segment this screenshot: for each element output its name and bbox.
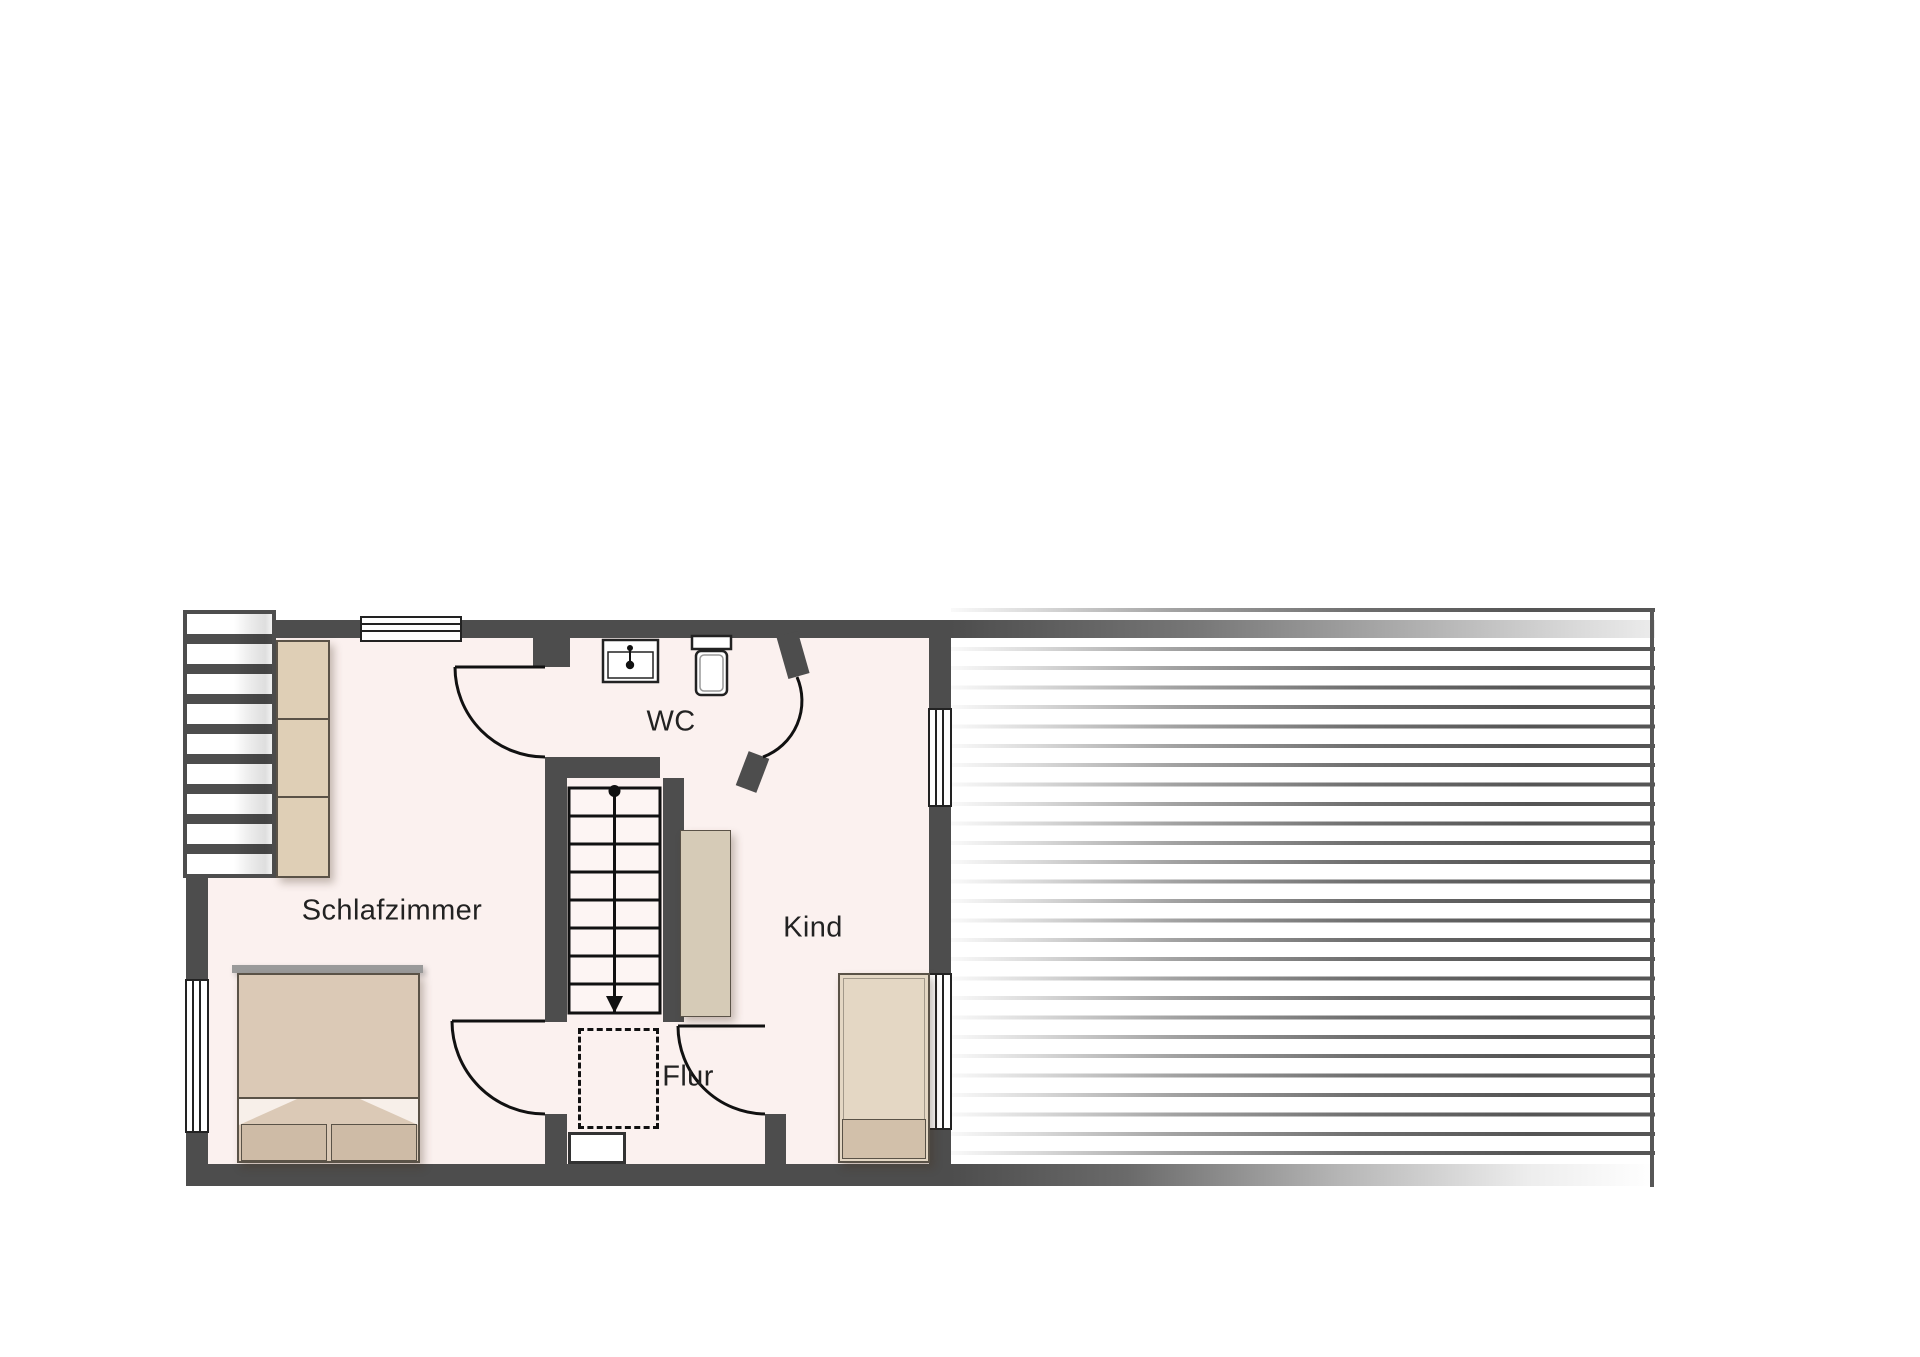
sink-icon	[603, 640, 658, 682]
room-label-kind: Kind	[783, 912, 843, 945]
floor-plan-canvas: Schlafzimmer WC Kind Flur	[0, 0, 1920, 1357]
plan-symbols-layer	[0, 0, 1920, 1357]
room-label-schlafzimmer: Schlafzimmer	[302, 895, 482, 928]
door-wc-kind	[763, 677, 802, 757]
door-schlafzimmer-wc	[455, 667, 545, 757]
wall-diagonal-wc-top	[787, 634, 799, 676]
toilet-icon	[692, 636, 731, 695]
room-label-flur: Flur	[662, 1061, 714, 1094]
wall-diagonal-wc-bottom	[746, 755, 759, 789]
door-schlafzimmer-flur	[452, 1021, 545, 1114]
room-label-wc: WC	[646, 706, 695, 739]
